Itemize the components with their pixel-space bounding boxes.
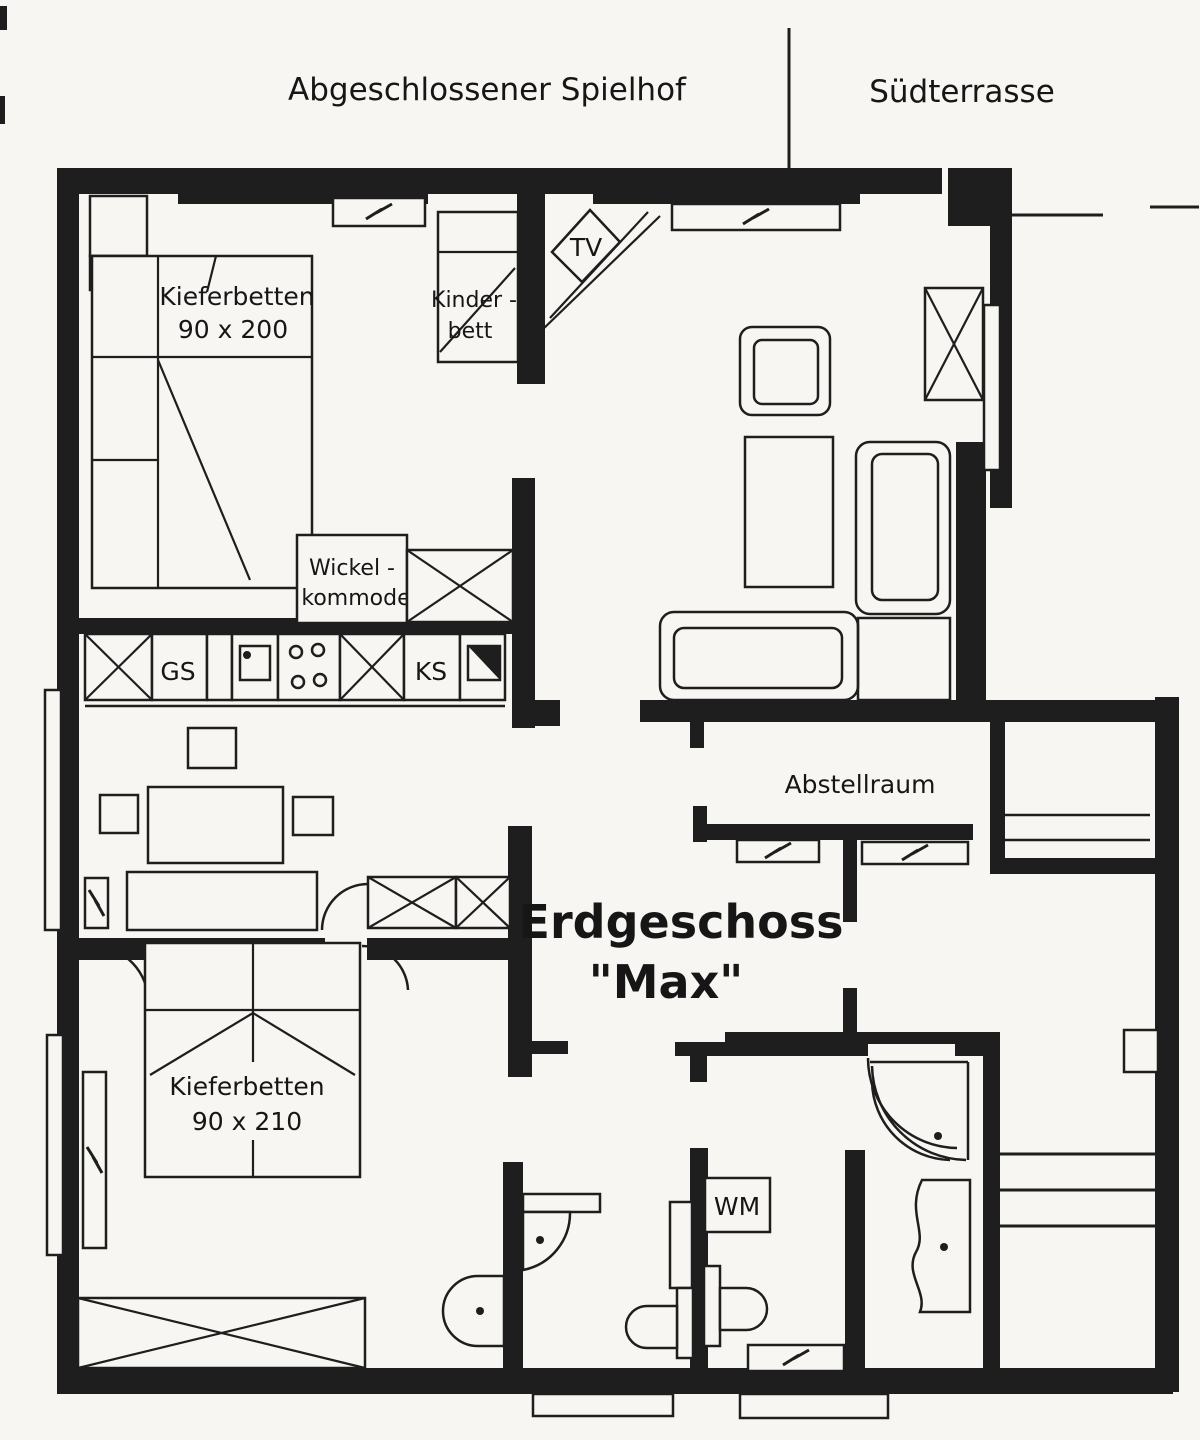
bed-size-label: 90 x 200 bbox=[178, 315, 288, 344]
wall-dining-south bbox=[367, 938, 513, 960]
shower-curtain-arc bbox=[872, 1082, 950, 1160]
child-bed-label: Kinder - bbox=[431, 288, 517, 313]
sofa-seat bbox=[872, 454, 938, 600]
dishwasher-label: GS bbox=[160, 657, 195, 686]
tv-corner: TV bbox=[540, 210, 660, 332]
plan-subtitle: "Max" bbox=[589, 955, 743, 1009]
sofa bbox=[856, 442, 950, 614]
door-swing-arc bbox=[322, 884, 368, 930]
bed-size-label: Kieferbetten bbox=[169, 1072, 324, 1101]
sink-drain bbox=[243, 651, 251, 659]
chair bbox=[293, 797, 333, 835]
changing-table-label: kommode bbox=[301, 586, 410, 611]
window-bay bbox=[45, 690, 61, 930]
armchair-seat bbox=[754, 340, 818, 404]
tv-label: TV bbox=[569, 233, 602, 262]
fridge-label: KS bbox=[415, 657, 447, 686]
wc-left bbox=[523, 1194, 693, 1358]
exterior-steps bbox=[1000, 1030, 1158, 1226]
cabinet bbox=[90, 196, 147, 256]
toilet-tank bbox=[677, 1288, 693, 1358]
scan-artifact bbox=[0, 96, 5, 124]
wall-wc-middle-stub bbox=[690, 1056, 707, 1082]
wall-center-mid bbox=[512, 478, 535, 728]
wall-storage-top bbox=[640, 700, 1155, 722]
toilet-tank bbox=[704, 1266, 720, 1346]
bathroom bbox=[868, 1058, 970, 1312]
storage-room-label: Abstellraum bbox=[785, 770, 936, 799]
wall-top bbox=[57, 168, 942, 194]
south-terrace-label: Südterrasse bbox=[869, 74, 1055, 110]
wall-living-right bbox=[956, 442, 986, 720]
scan-artifact bbox=[0, 6, 7, 30]
shelf bbox=[523, 1194, 600, 1212]
sliding-door-leaf bbox=[984, 305, 1000, 470]
toilet-drain bbox=[476, 1307, 484, 1315]
plan-title: Erdgeschoss bbox=[519, 895, 844, 949]
basin-drain bbox=[940, 1243, 948, 1251]
wall-wc-left bbox=[503, 1162, 523, 1373]
bed-size-label: Kieferbetten bbox=[159, 282, 314, 311]
wall-top-ledge bbox=[593, 194, 860, 204]
bedroom1: Kieferbetten 90 x 200 Kinder - bett bbox=[90, 196, 518, 588]
bench bbox=[127, 872, 317, 930]
window-bay bbox=[47, 1035, 63, 1255]
wall-bath-right bbox=[983, 1032, 1000, 1392]
dining-area bbox=[85, 728, 510, 930]
wall-center-upper bbox=[517, 194, 545, 384]
play-yard-label: Abgeschlossener Spielhof bbox=[288, 72, 687, 108]
changing-table-label: Wickel - bbox=[309, 556, 395, 581]
wall-hall-stub bbox=[843, 838, 857, 922]
wall-bath-left bbox=[845, 1150, 865, 1370]
bed-size-label: 90 x 210 bbox=[192, 1107, 302, 1136]
wall-storage-stub bbox=[690, 722, 704, 748]
wall-center-stub bbox=[535, 700, 560, 726]
coffee-table bbox=[745, 437, 833, 587]
sofa-corner-seat bbox=[858, 618, 950, 700]
wall-entry-room-left bbox=[990, 722, 1005, 862]
wall-storage-bottom bbox=[693, 824, 973, 840]
wall-center-stub bbox=[530, 1041, 568, 1054]
living-room bbox=[660, 204, 1000, 700]
threshold-step bbox=[740, 1394, 888, 1418]
corner-sink bbox=[523, 1212, 570, 1270]
duct bbox=[670, 1202, 692, 1288]
wc-right: WM bbox=[704, 1178, 844, 1371]
toilet bbox=[720, 1288, 767, 1330]
chair bbox=[188, 728, 236, 768]
toilet bbox=[443, 1276, 504, 1346]
wall-entry-room-bottom bbox=[990, 858, 1155, 874]
toilet bbox=[626, 1306, 677, 1348]
dining-table bbox=[148, 787, 283, 863]
stove bbox=[278, 634, 340, 700]
sink-drain bbox=[536, 1236, 544, 1244]
wall-corridor bbox=[675, 1042, 868, 1056]
bedroom2: Kieferbetten 90 x 210 bbox=[78, 943, 504, 1368]
wall-bottom bbox=[57, 1368, 1173, 1394]
shower-drain bbox=[934, 1132, 942, 1140]
garden-wall-step bbox=[1124, 1030, 1158, 1072]
child-bed-label: bett bbox=[448, 319, 493, 344]
counter bbox=[207, 634, 232, 700]
chair bbox=[100, 795, 138, 833]
washing-machine-label: WM bbox=[714, 1192, 760, 1221]
threshold-step bbox=[533, 1394, 673, 1416]
floor-plan-drawing: Abgeschlossener Spielhof Südterrasse bbox=[0, 0, 1200, 1440]
floor-plan-page: Abgeschlossener Spielhof Südterrasse bbox=[0, 0, 1200, 1440]
shower-curtain-arc bbox=[872, 1066, 966, 1160]
sofa-seat bbox=[674, 628, 842, 688]
